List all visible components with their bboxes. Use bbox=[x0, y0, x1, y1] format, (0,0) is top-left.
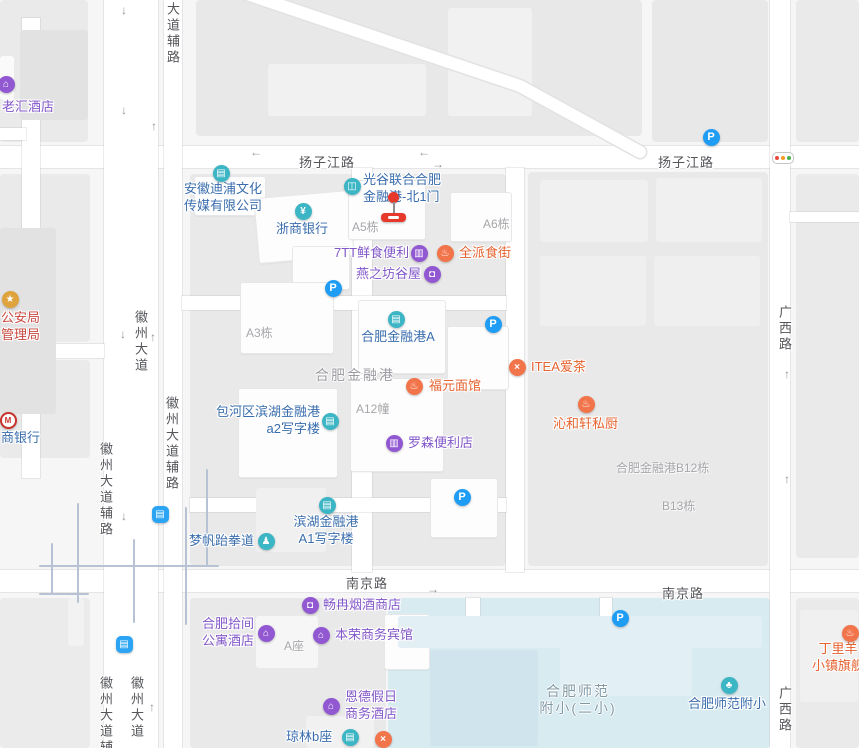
bus-stop-icon-huizhou-mid[interactable]: ▤ bbox=[152, 506, 169, 523]
hotel-icon[interactable]: ⌂ bbox=[258, 625, 275, 642]
poi-baohe-a2-office-label: a2写字楼 bbox=[267, 420, 320, 437]
one-way-arrow: ↑ bbox=[784, 473, 790, 485]
poi-baohe-a2-office-label: 包河区滨湖金融港 bbox=[216, 403, 320, 420]
parking-icon-yanzhifang[interactable]: P bbox=[325, 280, 342, 297]
building-label-b13: B13栋 bbox=[662, 497, 695, 514]
building-label-a12: A12幢 bbox=[356, 400, 389, 417]
building-label-a-zuo: A座 bbox=[284, 637, 304, 654]
company-icon[interactable]: ▤ bbox=[213, 165, 230, 182]
one-way-arrow: → bbox=[432, 158, 444, 170]
guangxi-road-label-mid: 广西路 bbox=[775, 305, 794, 353]
school-icon[interactable]: ♣ bbox=[721, 677, 738, 694]
poi-fuyuan-noodle-label: 福元面馆 bbox=[429, 377, 481, 394]
one-way-arrow: ↑ bbox=[784, 368, 790, 380]
one-way-arrow: ↑ bbox=[150, 331, 156, 343]
building-label-a3: A3栋 bbox=[246, 324, 273, 341]
food-icon[interactable]: ♨ bbox=[578, 396, 595, 413]
hotel-icon[interactable]: ⌂ bbox=[0, 76, 15, 93]
office-icon[interactable]: ▤ bbox=[319, 497, 336, 514]
building-label-b12: 合肥金融港B12栋 bbox=[616, 459, 709, 476]
one-way-arrow: ↑ bbox=[151, 120, 157, 132]
poi-dingliyang-flagship-label: 丁里羊 bbox=[818, 640, 857, 657]
diagonal-road bbox=[247, 0, 640, 152]
gov-icon[interactable]: ★ bbox=[2, 291, 19, 308]
nanjing-road-label-east: 南京路 bbox=[662, 583, 704, 602]
bank-icon[interactable]: ¥ bbox=[295, 203, 312, 220]
poi-hefei-shijian-apartment-label: 合肥拾间 bbox=[202, 615, 254, 632]
poi-yanzhifang-guwu-label: 燕之坊谷屋 bbox=[356, 265, 421, 282]
poi-binhu-a1-office-label: 滨湖金融港 bbox=[293, 513, 358, 530]
one-way-arrow: → bbox=[427, 583, 439, 595]
marker-base-slit bbox=[388, 216, 399, 219]
office-icon[interactable]: ▤ bbox=[322, 413, 339, 430]
one-way-arrow: ↓ bbox=[121, 4, 127, 16]
huizhou-avenue-label-mid: 徽州大道 bbox=[131, 310, 150, 374]
poi-public-security-bureau-label: 公安局 bbox=[1, 309, 40, 326]
poi-zhaoshang-bank-label: 商银行 bbox=[1, 429, 40, 446]
poi-public-security-bureau-label: 管理局 bbox=[1, 326, 40, 343]
parking-icon-school[interactable]: P bbox=[612, 610, 629, 627]
jinronggang-area-label: 合肥金融港 bbox=[315, 365, 395, 385]
convenience-icon[interactable]: ▥ bbox=[411, 245, 428, 262]
yangzijiang-road-label-west: 扬子江路 bbox=[299, 152, 355, 171]
office-icon[interactable]: ▤ bbox=[388, 311, 405, 328]
food-icon[interactable]: ♨ bbox=[437, 245, 454, 262]
poi-mengfan-taekwondo-label: 梦帆跆拳道 bbox=[189, 532, 254, 549]
one-way-arrow: ↑ bbox=[149, 701, 155, 713]
poi-anhui-dipu-media-label: 传媒有限公司 bbox=[184, 197, 262, 214]
poi-dingliyang-flagship-label: 小镇旗舰 bbox=[812, 657, 859, 674]
tea-icon[interactable]: × bbox=[375, 731, 392, 748]
huizhou-avenue-label-south: 徽州大道 bbox=[127, 676, 146, 740]
food-icon[interactable]: ♨ bbox=[406, 378, 423, 395]
yangzijiang-road-label-east: 扬子江路 bbox=[658, 152, 714, 171]
poi-guanggu-north-gate-label: 光谷联合合肥 bbox=[363, 171, 441, 188]
parking-icon-jinronggang-a[interactable]: P bbox=[485, 316, 502, 333]
destination-marker[interactable] bbox=[381, 192, 407, 226]
poi-qinhexuan-kitchen-label: 沁和轩私厨 bbox=[553, 415, 618, 432]
poi-quanpai-food-street-label: 全派食街 bbox=[459, 244, 511, 261]
poi-benrong-hotel-label: 本荣商务宾馆 bbox=[335, 626, 413, 643]
poi-anhui-dipu-media-label: 安徽迪浦文化 bbox=[184, 180, 262, 197]
poi-ende-hotel-label: 恩德假日 bbox=[345, 688, 397, 705]
food-icon[interactable]: ♨ bbox=[842, 625, 859, 642]
one-way-arrow: ↓ bbox=[121, 510, 127, 522]
entrance-icon[interactable]: ◫ bbox=[344, 178, 361, 195]
poi-changran-tobacco-label: 畅冉烟酒商店 bbox=[323, 596, 401, 613]
traffic-signal-icon bbox=[772, 152, 794, 164]
bag-icon[interactable]: ◘ bbox=[302, 597, 319, 614]
diagonal-road bbox=[247, 0, 640, 152]
school-area-label: 附小(二小) bbox=[539, 698, 616, 718]
hotel-icon[interactable]: ⌂ bbox=[313, 627, 330, 644]
one-way-arrow: ← bbox=[418, 146, 430, 158]
one-way-arrow: ↓ bbox=[121, 104, 127, 116]
one-way-arrow: ← bbox=[250, 146, 262, 158]
poi-7tt-convenience-label: 7TT鲜食便利 bbox=[334, 244, 409, 261]
huizhou-aux-road-label-mid-west: 徽州大道辅路 bbox=[96, 442, 115, 538]
poi-hefei-shijian-apartment-label: 公寓酒店 bbox=[202, 632, 254, 649]
one-way-arrow: ↓ bbox=[120, 328, 126, 340]
bag-icon[interactable]: ◘ bbox=[424, 266, 441, 283]
taekwondo-icon[interactable]: ♟ bbox=[258, 533, 275, 550]
poi-zheshang-bank-label: 浙商银行 bbox=[276, 220, 328, 237]
nanjing-road-label-west: 南京路 bbox=[346, 573, 388, 592]
parking-icon-yangzijiang[interactable]: P bbox=[703, 129, 720, 146]
poi-lawson-label: 罗森便利店 bbox=[408, 434, 473, 451]
office-icon[interactable]: ▤ bbox=[342, 729, 359, 746]
poi-laohui-hotel-label: 老汇酒店 bbox=[2, 98, 54, 115]
poi-binhu-a1-office-label: A1写字楼 bbox=[299, 530, 354, 547]
building-label-a5: A5栋 bbox=[352, 218, 379, 235]
convenience-icon[interactable]: ▥ bbox=[386, 435, 403, 452]
poi-jinronggang-a-label: 合肥金融港A bbox=[361, 328, 435, 345]
huizhou-aux-road-label-top: 大道辅路 bbox=[163, 2, 182, 66]
tea-icon[interactable]: × bbox=[509, 359, 526, 376]
bus-stop-icon-huizhou-south[interactable]: ▤ bbox=[116, 636, 133, 653]
poi-hefei-shifan-fuxiao-label: 合肥师范附小 bbox=[688, 695, 766, 712]
poi-qionglin-b-label: 琼林b座 bbox=[286, 728, 332, 745]
building-label-a6: A6栋 bbox=[483, 215, 510, 232]
huizhou-aux-road-label-south: 徽州大道辅路 bbox=[96, 676, 115, 748]
parking-icon-binhu[interactable]: P bbox=[454, 489, 471, 506]
poi-ende-hotel-label: 商务酒店 bbox=[345, 705, 397, 722]
poi-itea-label: ITEA爱茶 bbox=[531, 358, 586, 375]
cmb-icon[interactable]: M bbox=[0, 412, 17, 429]
hotel-icon[interactable]: ⌂ bbox=[323, 698, 340, 715]
guangxi-road-label-south: 广西路 bbox=[775, 686, 794, 734]
huizhou-aux-road-label-mid-east: 徽州大道辅路 bbox=[162, 396, 181, 492]
map-canvas[interactable]: 扬子江路扬子江路南京路南京路徽州大道徽州大道大道辅路徽州大道辅路徽州大道辅路徽州… bbox=[0, 0, 859, 748]
